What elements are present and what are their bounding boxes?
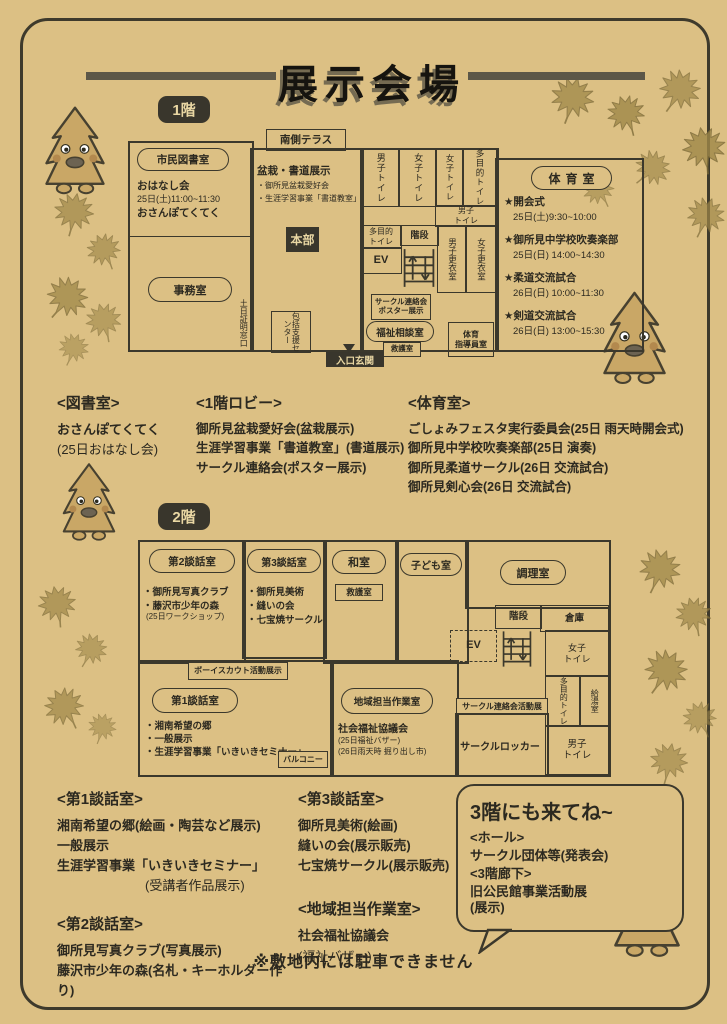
headquarters-label: 本部 — [286, 227, 319, 252]
floor3-title: 3階にも来てね~ — [470, 796, 670, 825]
womens-toilet: 女子トイレ — [398, 148, 437, 207]
section-gym: <体育室> ごしょみフェスタ実行委員会(25日 雨天時開会式) 御所見中学校吹奏… — [408, 392, 718, 498]
bonsai-exhibit-item: ・御所見盆栽愛好会 — [257, 180, 329, 191]
floor3-line: サークル団体等(発表会) — [470, 847, 670, 865]
section-heading: <体育室> — [408, 392, 718, 413]
regional-line: 社会福祉協議会 — [338, 720, 408, 735]
section-heading: <第2談話室> — [57, 913, 292, 934]
floor3-line: (展示) — [470, 900, 670, 916]
section-line: 御所見剣心会(26日 交流試合) — [408, 478, 718, 497]
circle-poster-line2: ポスター展示 — [379, 307, 424, 316]
regional-line: (26日雨天時 掘り出し市) — [338, 746, 426, 757]
floor3-line: 旧公民館事業活動展 — [470, 884, 670, 900]
maple-leaf-icon — [34, 582, 82, 637]
multipurpose-toilet-small: 多目的 トイレ — [360, 225, 402, 249]
floor2-badge: 2階 — [158, 503, 210, 530]
section-line: 社会福祉協議会 — [298, 926, 463, 946]
danwa1-item: ・湘南希望の郷 — [145, 718, 212, 732]
bonsai-exhibit-item: ・生涯学習事業「書道教室」 — [257, 193, 361, 204]
danwa3-item: ・七宝焼サークル — [247, 612, 323, 626]
mens-changing-room: 男子更衣室 — [437, 225, 467, 293]
multipurpose-toilet: 多目的トイレ — [462, 148, 497, 207]
section-line: (受講者作品展示) — [57, 876, 292, 896]
library-event-group: おさんぽてくてく — [137, 205, 220, 220]
section-heading: <図書室> — [57, 392, 192, 413]
gym-event-time: 26日(日) 10:00~11:30 — [504, 285, 636, 299]
section-line: 縫いの会(展示販売) — [298, 836, 463, 856]
title-dash-left — [86, 72, 276, 80]
room-label-danwa2: 第2談話室 — [149, 549, 235, 573]
gym-event-name: ★柔道交流試合 — [504, 270, 636, 285]
section-line: (25日おはなし会) — [57, 440, 192, 460]
balcony-label: バルコニー — [278, 751, 328, 768]
no-parking-note: ※敷地内には駐車できません — [0, 948, 727, 972]
mens-toilet-2f: 男子 トイレ — [545, 725, 609, 775]
support-center-label: 包括支援センター — [271, 311, 311, 353]
mens-toilet-small: 男子 トイレ — [435, 205, 497, 227]
room-label-regional-work: 地域担当作業室 — [341, 688, 433, 714]
flyer-page: { "page": { "title": "展示会場", "note": "※敷… — [0, 0, 727, 1024]
section-line: 御所見盆栽愛好会(盆栽展示) — [196, 420, 411, 439]
library-event-time: 25日(土)11:00~11:30 — [137, 192, 220, 205]
room-label-cooking: 調理室 — [500, 560, 566, 585]
room-label-office: 事務室 — [148, 277, 232, 302]
mens-toilet: 男子トイレ — [360, 148, 400, 207]
room-label-gym: 体育室 — [531, 166, 612, 190]
section-heading: <1階ロビー> — [196, 392, 411, 413]
section-danwa3: <第3談話室> 御所見美術(絵画) 縫いの会(展示販売) 七宝焼サークル(展示販… — [298, 788, 463, 967]
entrance-label: 入口玄関 — [326, 352, 384, 367]
section-lobby: <1階ロビー> 御所見盆栽愛好会(盆栽展示) 生涯学習事業「書道教室」(書道展示… — [196, 392, 411, 478]
room-label-danwa3: 第3談話室 — [247, 549, 321, 573]
stairs-label: 階段 — [400, 225, 439, 246]
room-label-danwa1: 第1談話室 — [152, 688, 238, 713]
danwa3-item: ・御所見美術 — [247, 584, 304, 598]
stairs-icon — [498, 628, 536, 675]
gym-event-name: ★開会式 — [504, 194, 636, 209]
section-line: ごしょみフェスタ実行委員会(25日 雨天時開会式) — [408, 420, 718, 439]
pe-instructor-room: 体育 指導員室 — [448, 322, 494, 357]
room-label-citizens-library: 市民図書室 — [137, 148, 229, 171]
elevator-label-2f: EV — [450, 630, 497, 662]
elevator-label: EV — [360, 247, 402, 274]
gym-event-list: ★開会式 25日(土)9:30~10:00 ★御所見中学校吹奏楽部 25日(日)… — [504, 194, 636, 337]
tree-mascot-icon — [25, 103, 125, 203]
section-line: 生涯学習事業「書道教室」(書道展示) — [196, 439, 411, 458]
floor3-line: <3階廊下> — [470, 865, 670, 883]
section-library: <図書室> おさんぽてくてく (25日おはなし会) — [57, 392, 192, 460]
danwa2-item: ・御所見写真クラブ — [143, 584, 229, 598]
first-aid-room-label-2f: 救護室 — [335, 584, 383, 601]
room-label-washitsu: 和室 — [332, 550, 386, 574]
danwa2-sub: (25日ワークショップ) — [146, 611, 224, 622]
gym-event-name: ★御所見中学校吹奏楽部 — [504, 232, 636, 247]
gym-event-time: 25日(土)9:30~10:00 — [504, 209, 636, 223]
room-label-kids: 子ども室 — [400, 553, 462, 576]
storage-label: 倉庫 — [540, 605, 609, 632]
room-label-welfare-consult: 福祉相談室 — [366, 321, 434, 342]
room-regional-work — [330, 660, 459, 777]
womens-changing-room: 女子更衣室 — [465, 225, 497, 293]
title-dash-right — [468, 72, 645, 80]
stairs-icon — [401, 245, 437, 296]
maple-leaf-icon — [678, 122, 727, 184]
bonsai-exhibit-title: 盆栽・書道展示 — [257, 163, 331, 178]
womens-toilet-2f: 女子 トイレ — [545, 630, 609, 677]
section-line: 御所見柔道サークル(26日 交流試合) — [408, 459, 718, 478]
danwa2-item: ・藤沢市少年の森 — [143, 598, 219, 612]
room-divider — [128, 236, 250, 237]
section-heading: <地域担当作業室> — [298, 898, 463, 919]
weekend-certificate-window-label: 土日証明窓口 — [236, 294, 250, 352]
section-line: 湘南希望の郷(絵画・陶芸など展示) — [57, 816, 292, 836]
danwa3-item: ・縫いの会 — [247, 598, 295, 612]
section-line: サークル連絡会(ポスター展示) — [196, 459, 411, 478]
multipurpose-toilet-2f: 多目的トイレ — [545, 675, 581, 727]
regional-line: (25日福祉バザー) — [338, 735, 400, 746]
floor3-callout: 3階にも来てね~ <ホール> サークル団体等(発表会) <3階廊下> 旧公民館事… — [456, 784, 684, 932]
first-aid-room-label: 救護室 — [383, 342, 421, 357]
section-line: 七宝焼サークル(展示販売) — [298, 856, 463, 876]
page-title: 展示会場 — [278, 52, 466, 110]
pe-instructor-line1: 体育 — [463, 330, 479, 340]
pe-instructor-line2: 指導員室 — [455, 340, 487, 350]
circle-poster-exhibit-label: サークル連絡会 ポスター展示 — [371, 294, 431, 320]
library-event-title: おはなし会 — [137, 178, 190, 193]
stairs-label-2f: 階段 — [495, 605, 542, 629]
gym-event-name: ★剣道交流試合 — [504, 308, 636, 323]
section-line: 一般展示 — [57, 836, 292, 856]
gym-event-time: 26日(日) 13:00~15:30 — [504, 323, 636, 337]
kitchenette-label: 給湯室 — [579, 675, 609, 727]
womens-toilet: 女子トイレ — [435, 148, 464, 207]
section-line: 生涯学習事業「いきいきセミナー」 — [57, 856, 292, 876]
floor3-line: <ホール> — [470, 829, 670, 847]
gym-event-time: 25日(日) 14:00~14:30 — [504, 247, 636, 261]
section-line: 御所見美術(絵画) — [298, 816, 463, 836]
circle-locker-label: サークルロッカー — [458, 738, 542, 753]
tree-mascot-icon — [45, 460, 133, 549]
floor1-badge: 1階 — [158, 96, 210, 123]
danwa1-item: ・一般展示 — [145, 731, 193, 745]
section-heading: <第1談話室> — [57, 788, 292, 809]
section-line: おさんぽてくてく — [57, 420, 192, 440]
section-heading: <第3談話室> — [298, 788, 463, 809]
section-line: 御所見中学校吹奏楽部(25日 演奏) — [408, 439, 718, 458]
